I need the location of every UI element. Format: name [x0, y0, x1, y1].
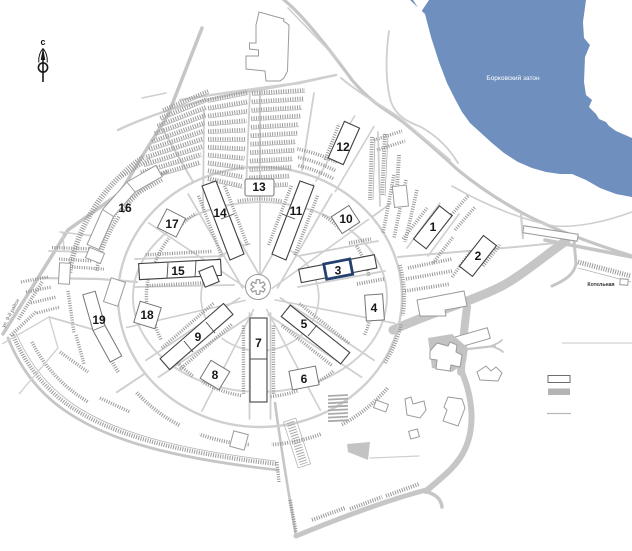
- svg-text:1: 1: [430, 220, 437, 234]
- svg-text:7: 7: [255, 336, 262, 350]
- svg-text:6: 6: [301, 372, 308, 386]
- svg-text:5: 5: [301, 317, 308, 331]
- svg-text:14: 14: [213, 206, 227, 220]
- svg-text:4: 4: [371, 301, 378, 315]
- svg-text:16: 16: [118, 201, 132, 215]
- svg-text:11: 11: [290, 204, 303, 218]
- svg-text:Котельная: Котельная: [587, 282, 614, 288]
- svg-text:Борковский затон: Борковский затон: [486, 74, 540, 82]
- svg-text:8: 8: [212, 368, 219, 382]
- svg-text:2: 2: [475, 249, 482, 263]
- svg-text:19: 19: [92, 313, 106, 327]
- svg-text:12: 12: [336, 140, 350, 154]
- svg-text:17: 17: [165, 217, 179, 231]
- svg-text:13: 13: [252, 180, 266, 194]
- svg-text:10: 10: [339, 212, 353, 226]
- svg-text:3: 3: [335, 264, 342, 278]
- svg-text:15: 15: [171, 264, 185, 278]
- svg-text:с: с: [40, 37, 45, 47]
- svg-text:18: 18: [140, 308, 154, 322]
- svg-text:9: 9: [195, 330, 202, 344]
